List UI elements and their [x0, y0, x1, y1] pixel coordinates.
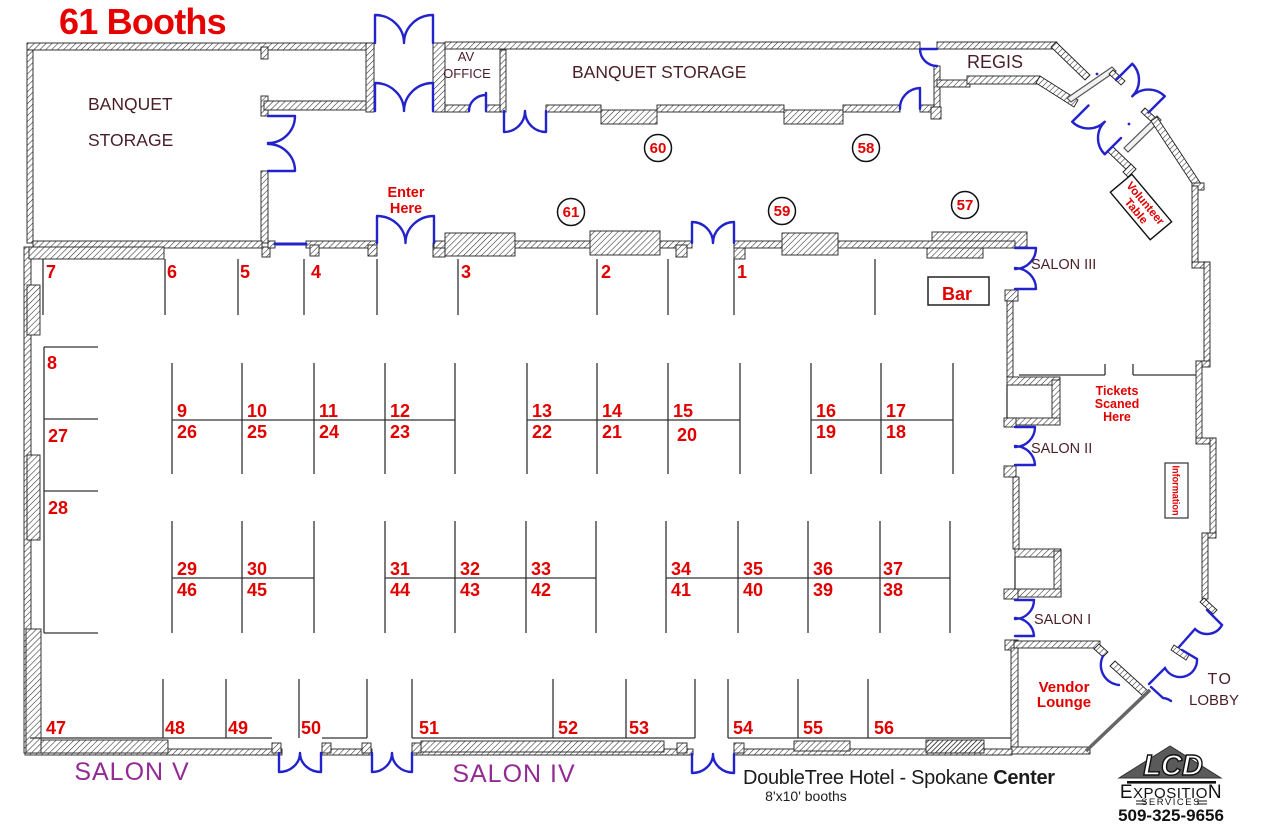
svg-text:23: 23 [390, 422, 410, 442]
svg-text:8'x10' booths: 8'x10' booths [765, 788, 847, 804]
svg-text:47: 47 [46, 718, 66, 738]
svg-text:43: 43 [460, 580, 480, 600]
svg-text:53: 53 [629, 718, 649, 738]
svg-text:29: 29 [177, 559, 197, 579]
svg-text:Tickets: Tickets [1096, 384, 1139, 398]
svg-text:OFFICE: OFFICE [443, 66, 491, 81]
svg-text:10: 10 [247, 401, 267, 421]
svg-text:44: 44 [390, 580, 410, 600]
svg-text:40: 40 [743, 580, 763, 600]
svg-text:SALON IV: SALON IV [452, 760, 575, 788]
svg-text:STORAGE: STORAGE [88, 130, 173, 150]
svg-text:24: 24 [319, 422, 339, 442]
svg-text:BANQUET: BANQUET [88, 94, 173, 114]
svg-text:Lounge: Lounge [1037, 694, 1091, 711]
svg-text:5: 5 [240, 262, 250, 282]
svg-text:38: 38 [883, 580, 903, 600]
svg-text:LCD: LCD [1143, 750, 1203, 782]
svg-text:57: 57 [957, 197, 974, 214]
svg-text:18: 18 [886, 422, 906, 442]
svg-text:13: 13 [532, 401, 552, 421]
svg-text:59: 59 [774, 203, 791, 220]
svg-text:15: 15 [673, 401, 693, 421]
svg-text:REGIS: REGIS [967, 52, 1023, 72]
svg-text:22: 22 [532, 422, 552, 442]
svg-text:16: 16 [816, 401, 836, 421]
svg-text:21: 21 [602, 422, 622, 442]
svg-text:54: 54 [733, 718, 753, 738]
svg-text:42: 42 [531, 580, 551, 600]
svg-text:31: 31 [390, 559, 410, 579]
svg-text:26: 26 [177, 422, 197, 442]
svg-text:36: 36 [813, 559, 833, 579]
svg-text:9: 9 [177, 401, 187, 421]
svg-text:32: 32 [460, 559, 480, 579]
svg-text:SALON III: SALON III [1031, 257, 1096, 273]
svg-text:11: 11 [319, 401, 338, 421]
svg-text:51: 51 [419, 718, 439, 738]
svg-text:8: 8 [47, 353, 57, 373]
svg-text:SALON I: SALON I [1034, 612, 1091, 628]
svg-text:SALON II: SALON II [1031, 441, 1092, 457]
svg-text:46: 46 [177, 580, 197, 600]
svg-text:3: 3 [461, 262, 471, 282]
svg-text:20: 20 [677, 425, 697, 445]
svg-text:50: 50 [301, 718, 321, 738]
svg-text:509-325-9656: 509-325-9656 [1118, 806, 1224, 825]
svg-text:61 Booths: 61 Booths [59, 1, 226, 42]
svg-text:12: 12 [390, 401, 410, 421]
svg-text:Enter: Enter [387, 185, 424, 201]
svg-text:BANQUET STORAGE: BANQUET STORAGE [572, 62, 746, 82]
svg-text:25: 25 [247, 422, 267, 442]
svg-text:39: 39 [813, 580, 833, 600]
svg-text:37: 37 [883, 559, 903, 579]
svg-text:61: 61 [563, 204, 580, 221]
svg-text:2: 2 [601, 262, 611, 282]
svg-text:14: 14 [602, 401, 622, 421]
svg-text:33: 33 [531, 559, 551, 579]
svg-text:4: 4 [311, 262, 321, 282]
svg-text:55: 55 [803, 718, 823, 738]
svg-text:45: 45 [247, 580, 267, 600]
svg-text:6: 6 [167, 262, 177, 282]
svg-text:LOBBY: LOBBY [1189, 692, 1239, 709]
svg-text:TO: TO [1208, 671, 1233, 688]
svg-text:28: 28 [48, 498, 68, 518]
svg-text:AV: AV [458, 49, 475, 64]
svg-text:56: 56 [874, 718, 894, 738]
svg-text:Information: Information [1170, 466, 1182, 516]
svg-text:SALON V: SALON V [74, 758, 189, 786]
svg-text:Here: Here [1103, 410, 1131, 424]
svg-text:1: 1 [737, 262, 747, 282]
svg-text:27: 27 [48, 426, 68, 446]
svg-text:35: 35 [743, 559, 763, 579]
svg-text:Here: Here [390, 201, 422, 217]
svg-text:52: 52 [558, 718, 578, 738]
svg-text:34: 34 [671, 559, 691, 579]
svg-text:41: 41 [671, 580, 691, 600]
svg-text:7: 7 [46, 262, 56, 282]
svg-text:58: 58 [858, 140, 875, 157]
svg-text:60: 60 [650, 140, 667, 157]
svg-text:DoubleTree Hotel - Spokane Cen: DoubleTree Hotel - Spokane Center [743, 767, 1055, 789]
svg-text:19: 19 [816, 422, 836, 442]
svg-text:49: 49 [228, 718, 248, 738]
svg-text:Bar: Bar [942, 284, 972, 304]
svg-text:48: 48 [165, 718, 185, 738]
svg-text:30: 30 [247, 559, 267, 579]
svg-text:17: 17 [886, 401, 906, 421]
svg-text:Scaned: Scaned [1095, 397, 1139, 411]
